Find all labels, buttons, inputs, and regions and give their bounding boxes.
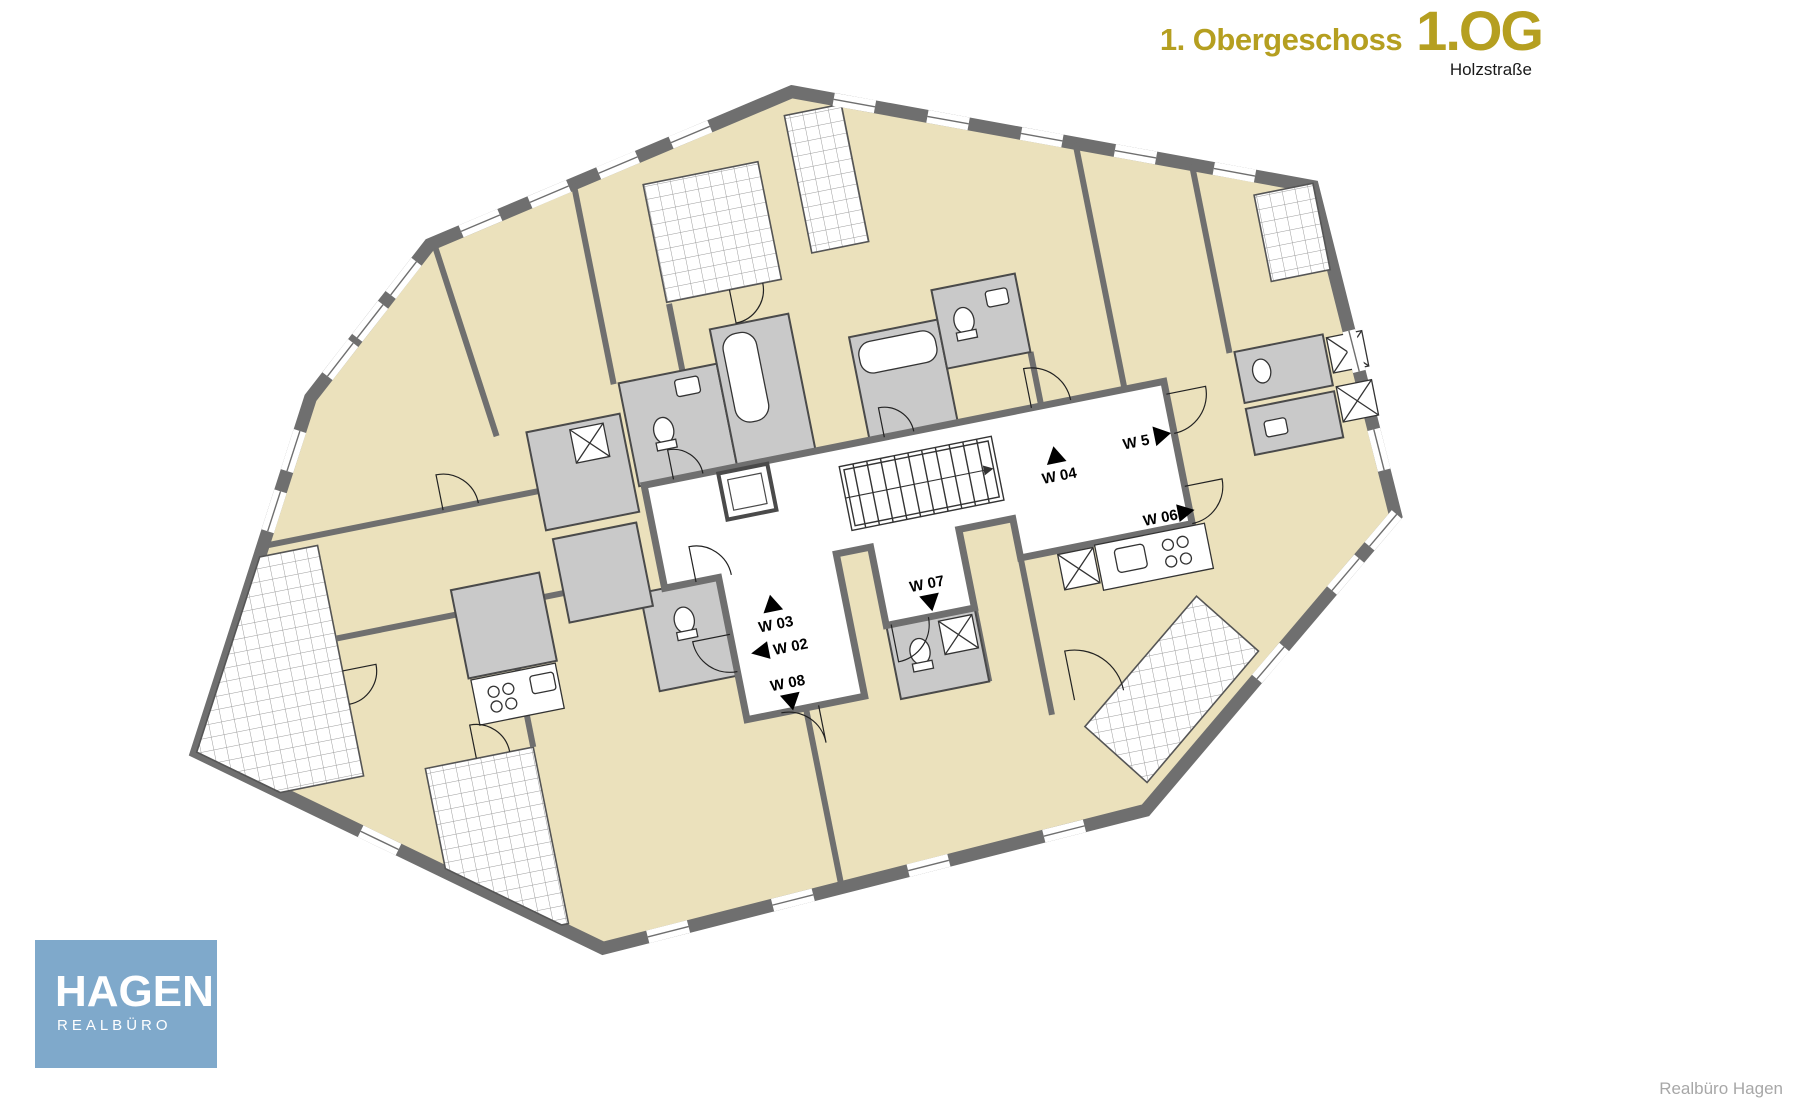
logo-title: HAGEN xyxy=(55,970,217,1014)
sink-icon xyxy=(985,287,1010,307)
kitchen-room xyxy=(451,573,557,679)
kitchen-sink-icon xyxy=(529,672,556,694)
sink-icon xyxy=(1264,417,1289,437)
terrace-top-left xyxy=(643,162,781,303)
watermark: Realbüro Hagen xyxy=(1659,1079,1783,1099)
floor-plan: W 03 W 02 W 08 W 07 W 04 W 5 W 06 xyxy=(0,0,1795,1107)
kitchen-sink-icon xyxy=(1114,544,1148,573)
logo-subtitle: REALBÜRO xyxy=(57,1017,217,1034)
bathroom xyxy=(931,274,1030,369)
elevator xyxy=(718,464,776,520)
kitchen-room xyxy=(553,523,653,623)
hagen-logo: HAGEN REALBÜRO xyxy=(35,940,217,1068)
